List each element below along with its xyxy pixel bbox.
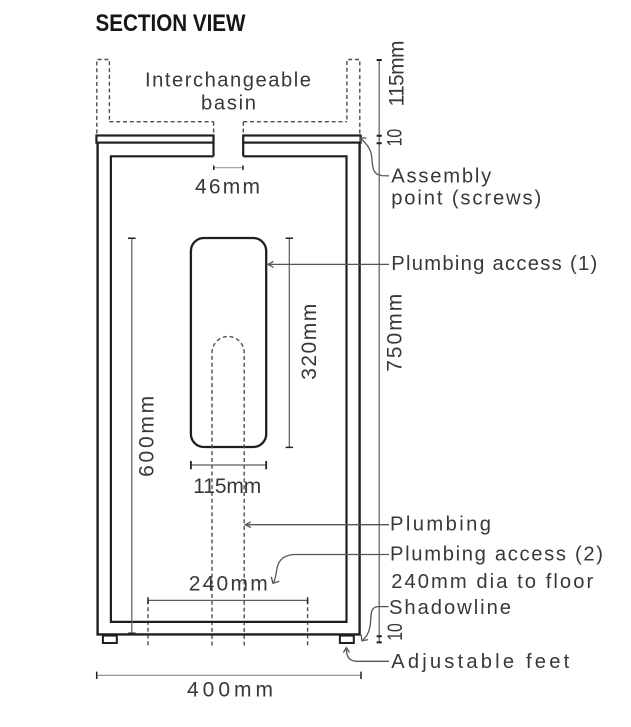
svg-text:10: 10 [384, 129, 407, 147]
svg-text:115mm: 115mm [193, 475, 261, 498]
svg-text:Shadowline: Shadowline [389, 597, 511, 619]
svg-text:240mm dia to floor: 240mm dia to floor [391, 571, 593, 593]
svg-text:Interchangeable: Interchangeable [145, 70, 311, 92]
svg-text:320mm: 320mm [298, 304, 321, 380]
svg-text:basin: basin [201, 93, 256, 115]
svg-text:Plumbing: Plumbing [390, 514, 491, 536]
svg-text:Plumbing access (2): Plumbing access (2) [390, 543, 603, 565]
svg-text:Plumbing access (1): Plumbing access (1) [391, 253, 597, 275]
svg-text:SECTION VIEW: SECTION VIEW [96, 10, 246, 37]
svg-text:115mm: 115mm [385, 41, 408, 107]
svg-text:46mm: 46mm [195, 175, 260, 198]
svg-text:Adjustable feet: Adjustable feet [391, 651, 569, 673]
svg-text:10: 10 [384, 623, 407, 641]
svg-text:point (screws): point (screws) [391, 187, 541, 209]
